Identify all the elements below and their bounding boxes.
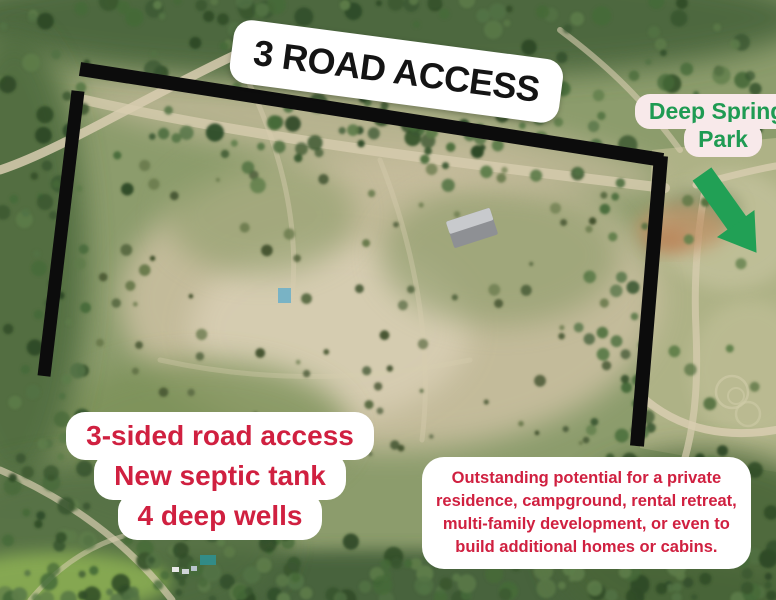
park-label-line2: Park: [684, 122, 762, 157]
description-line-3: multi-family development, or even to: [436, 513, 737, 536]
aerial-listing-image: { "annotations": { "title": "3 ROAD ACCE…: [0, 0, 776, 600]
description-line-2: residence, campground, rental retreat,: [436, 490, 737, 513]
blue-shed: [278, 288, 291, 303]
description-line-4: build additional homes or cabins.: [436, 536, 737, 559]
park-label: Deep Springs Park: [628, 94, 776, 157]
description-badge: Outstanding potential for a private resi…: [422, 457, 751, 569]
feature-line-deep-wells: 4 deep wells: [118, 492, 323, 540]
description-line-1: Outstanding potential for a private: [436, 467, 737, 490]
features-badge: 3-sided road access New septic tank 4 de…: [40, 412, 400, 540]
teal-structure: [200, 555, 216, 565]
